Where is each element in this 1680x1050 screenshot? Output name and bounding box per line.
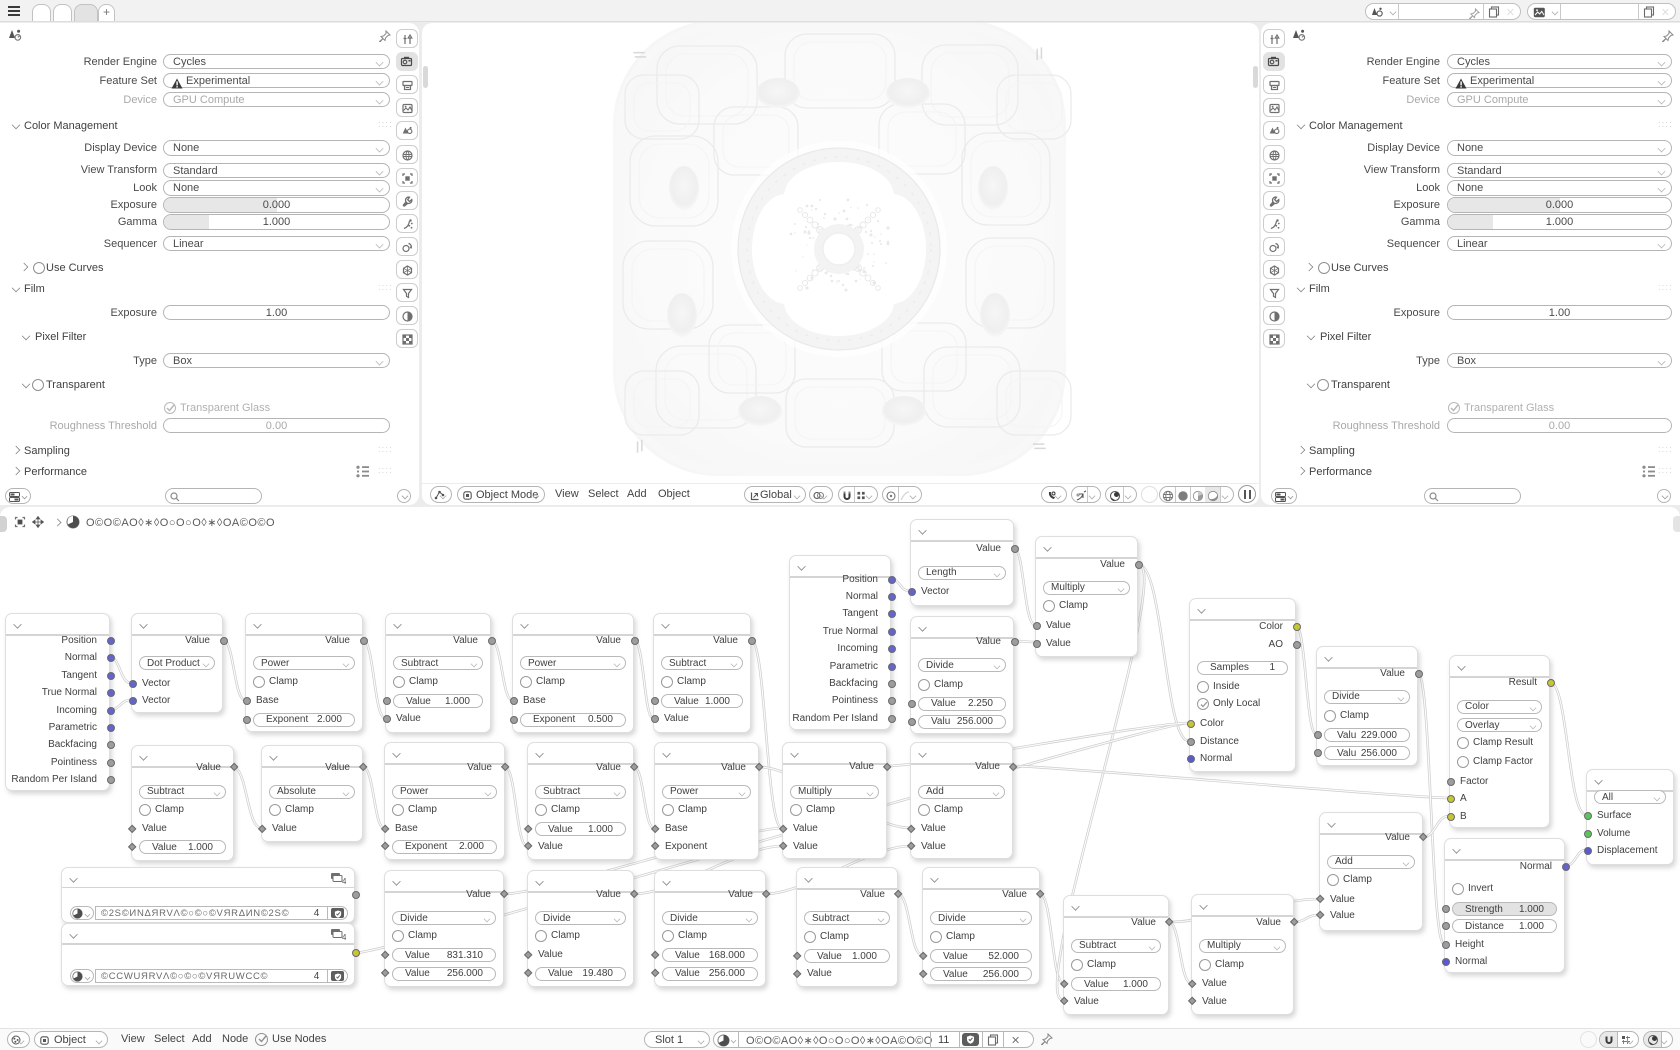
svg-text:4: 4 (342, 933, 346, 941)
svg-text:4: 4 (342, 877, 346, 885)
